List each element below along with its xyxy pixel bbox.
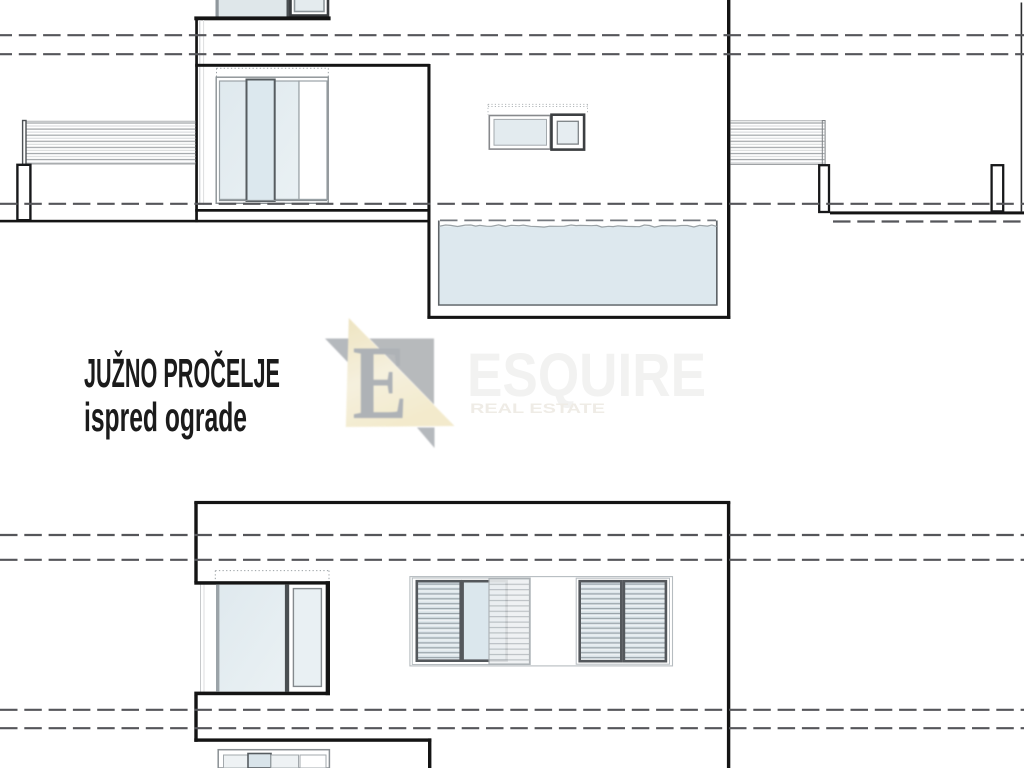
svg-text:REAL ESTATE: REAL ESTATE [470, 400, 605, 416]
svg-text:JUŽNO PROČELJE: JUŽNO PROČELJE [84, 350, 280, 396]
svg-text:ispred ograde: ispred ograde [84, 394, 247, 440]
svg-text:ESQUIRE: ESQUIRE [467, 341, 706, 409]
svg-text:E: E [353, 324, 408, 441]
